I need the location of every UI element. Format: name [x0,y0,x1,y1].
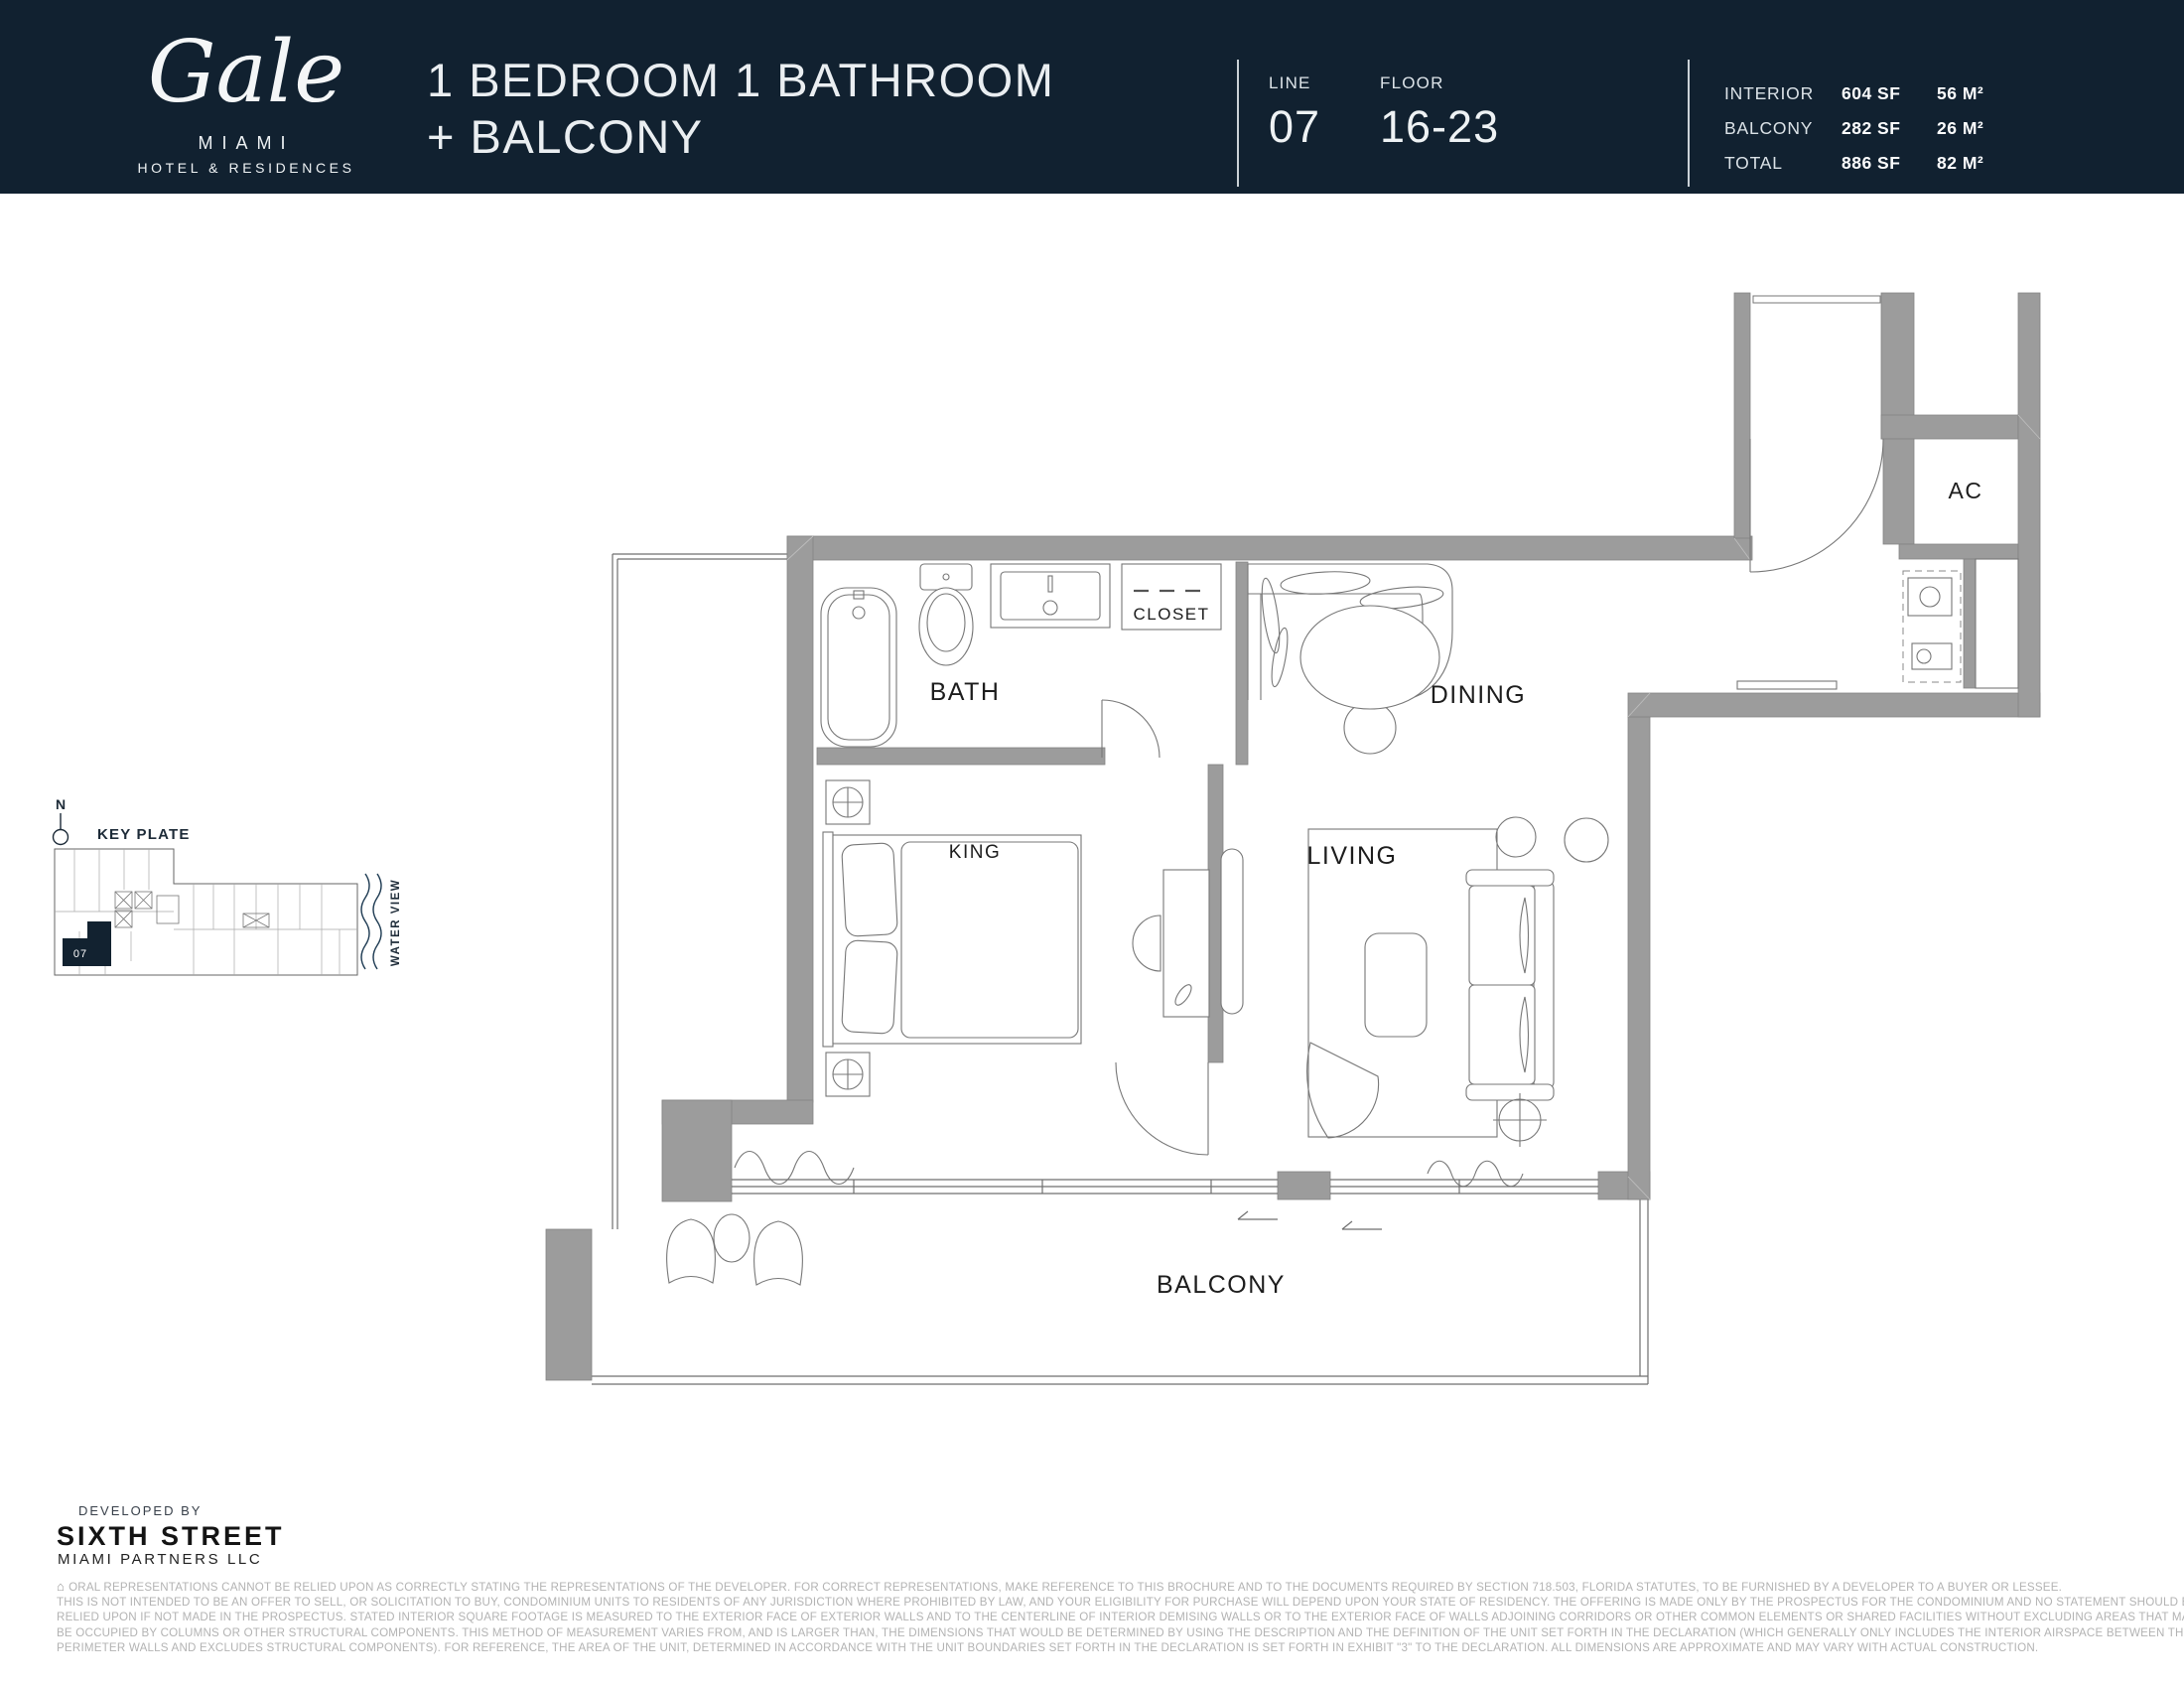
page-title-line1: 1 BEDROOM 1 BATHROOM [427,52,1054,108]
side-table-icon [1496,817,1536,857]
stat-sf: 282 SF [1842,118,1937,139]
line-block: LINE 07 [1269,73,1320,153]
developer-name: SIXTH STREET [57,1521,285,1552]
key-plate-unit-07: 07 [63,921,111,966]
floor-lamp-icon [1493,1093,1547,1147]
balcony-furniture [667,1214,803,1285]
coffee-table-icon [1365,933,1427,1037]
nightstand-icon [826,780,870,824]
room-label-living: LIVING [1307,842,1398,870]
stat-label: BALCONY [1724,118,1842,139]
curtain-waves [735,1152,1523,1187]
balcony-chair-icon [667,1219,716,1283]
shaft [1976,559,2018,688]
king-bed-icon [823,832,1081,1047]
disclaimer-line: THIS IS NOT INTENDED TO BE AN OFFER TO S… [57,1595,2141,1610]
line-label: LINE [1269,73,1320,93]
slider-direction-arrows [1238,1211,1382,1229]
disclaimer-line: PERIMETER WALLS AND EXCLUDES STRUCTURAL … [57,1640,2141,1655]
entry-door [1750,296,1883,572]
key-plate-unit-number: 07 [73,948,87,960]
floor-plan: BATH CLOSET DINING LIVING KING AC BALCON… [427,288,2055,1400]
disclaimer-line: ⌂ORAL REPRESENTATIONS CANNOT BE RELIED U… [57,1579,2141,1595]
lounge-chair-icon [1307,1043,1379,1138]
north-letter: N [56,796,66,812]
plant-icon [1269,627,1291,687]
logo-brand-script: Gale [127,14,365,131]
equal-housing-icon: ⌂ [57,1579,65,1594]
corner-hatches [787,415,2040,1199]
page-title-line2: + BALCONY [427,108,1054,165]
bathroom-door [1102,700,1160,758]
nightstand-icon [826,1053,870,1096]
stat-label: INTERIOR [1724,83,1842,104]
developed-by-label: DEVELOPED BY [78,1503,202,1518]
line-value: 07 [1269,101,1320,153]
stat-m2: 82 M² [1937,153,1983,174]
laundry-closet [1903,571,1961,682]
stat-label: TOTAL [1724,153,1842,174]
disclaimer-text: ORAL REPRESENTATIONS CANNOT BE RELIED UP… [68,1581,2062,1594]
stat-m2: 56 M² [1937,83,1983,104]
disclaimer-line: BE OCCUPIED BY COLUMNS OR OTHER STRUCTUR… [57,1625,2141,1640]
toilet-icon [919,564,973,665]
page-title: 1 BEDROOM 1 BATHROOM + BALCONY [427,52,1054,165]
room-label-dining: DINING [1431,681,1527,709]
area-stats: INTERIOR 604 SF 56 M² BALCONY 282 SF 26 … [1724,83,1983,174]
developer-subname: MIAMI PARTNERS LLC [58,1551,262,1568]
room-label-closet: CLOSET [1133,605,1209,624]
floor-label: FLOOR [1380,73,1499,93]
water-view-indicator: WATER VIEW [361,874,402,969]
stat-sf: 604 SF [1842,83,1937,104]
stat-m2: 26 M² [1937,118,1983,139]
north-compass-icon: N [54,796,68,845]
balcony-chair-icon [754,1221,803,1285]
washer-icon [1908,578,1952,616]
legal-disclaimer: ⌂ORAL REPRESENTATIONS CANNOT BE RELIED U… [57,1579,2141,1655]
key-plate-title: KEY PLATE [97,826,191,843]
tv-console-icon [1221,849,1243,1014]
floor-block: FLOOR 16-23 [1380,73,1499,153]
balcony-table-icon [714,1214,750,1262]
floorplan-brochure-page: { "header": { "logo": { "brand": "Gale",… [0,0,2184,1688]
dining-table-icon [1300,606,1439,754]
logo-city: MIAMI [127,133,365,154]
entry-bench-icon [1737,681,1837,689]
logo-subtitle: HOTEL & RESIDENCES [127,160,365,176]
plant-icon [1259,577,1283,653]
room-label-ac: AC [1949,478,1983,503]
water-view-label: WATER VIEW [390,879,402,966]
sink-vanity-icon [991,564,1110,628]
header-divider-1 [1237,60,1239,187]
key-plate: N KEY PLATE 07 [40,792,437,1006]
disclaimer-line: RELIED UPON IF NOT MADE IN THE PROSPECTU… [57,1610,2141,1624]
floor-value: 16-23 [1380,101,1499,153]
dryer-icon [1912,643,1952,669]
desk-icon [1133,870,1209,1017]
header-divider-2 [1688,60,1690,187]
balcony-windows [732,1180,1598,1194]
walls [546,293,2040,1380]
bathtub-icon [821,588,896,747]
room-label-king: KING [949,842,1001,863]
bedroom-door [1116,1062,1208,1155]
stat-sf: 886 SF [1842,153,1937,174]
side-table-icon [1565,818,1608,862]
header-bar: Gale MIAMI HOTEL & RESIDENCES 1 BEDROOM … [0,0,2184,194]
sofa-icon [1466,870,1554,1100]
room-label-balcony: BALCONY [1157,1271,1286,1299]
room-label-bath: BATH [930,678,1001,706]
gale-logo: Gale MIAMI HOTEL & RESIDENCES [127,14,365,176]
